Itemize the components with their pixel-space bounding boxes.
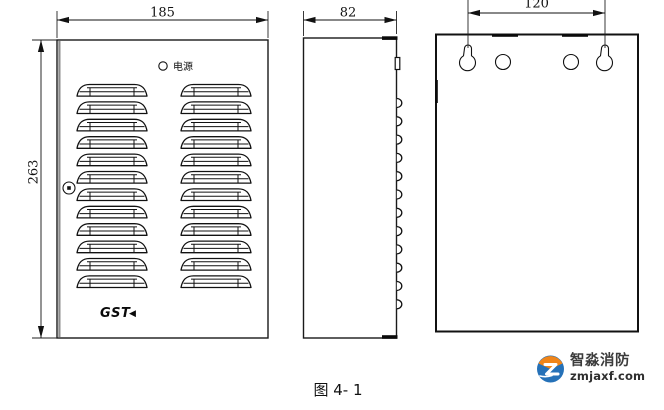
dimension-front-width: 185 [57, 6, 268, 39]
louver-vent [77, 224, 147, 236]
gst-logo-text: GST [100, 306, 131, 321]
zm-logo-icon [536, 352, 566, 384]
watermark-domain: zmjaxf.com [570, 370, 645, 382]
side-top-flange [382, 36, 398, 40]
louver-vent [77, 119, 147, 131]
louver-vent [181, 102, 251, 114]
louver-vent [181, 172, 251, 184]
louver-vent [77, 85, 147, 97]
louver-vent [77, 102, 147, 114]
side-body-outline [304, 38, 397, 338]
side-louver-bump [397, 135, 402, 144]
louver-vent [77, 172, 147, 184]
louver-vent [181, 241, 251, 253]
louver-vent [181, 119, 251, 131]
louver-vent [77, 189, 147, 201]
dimension-side-depth: 82 [304, 6, 397, 37]
figure-canvas: 电源 GST ◀ 185 263 [0, 0, 664, 410]
watermark: 智淼消防 zmjaxf.com [536, 352, 645, 384]
side-louver-bump [397, 282, 402, 291]
side-louver-bump [397, 117, 402, 126]
front-width-value: 185 [150, 6, 175, 21]
louver-vent [77, 206, 147, 218]
louver-vent [181, 137, 251, 149]
louver-vent [77, 241, 147, 253]
gst-logo-mark-icon: ◀ [129, 309, 136, 319]
technical-drawing: 电源 GST ◀ 185 263 [0, 0, 664, 410]
side-louver-profile [397, 99, 402, 309]
figure-caption: 图 4- 1 [288, 379, 388, 400]
louver-vent [181, 154, 251, 166]
side-louver-bump [397, 263, 402, 272]
side-edge-latch-tab [395, 58, 400, 70]
side-louver-bump [397, 172, 402, 181]
back-top-slot-right [562, 34, 588, 37]
dimension-front-height: 263 [27, 40, 58, 338]
watermark-brand: 智淼消防 [570, 354, 645, 369]
front-height-value: 263 [27, 160, 42, 185]
side-louver-bump [397, 153, 402, 162]
power-led-label: 电源 [173, 60, 193, 73]
back-view [435, 34, 638, 331]
louver-vent [181, 206, 251, 218]
louver-vent [77, 154, 147, 166]
side-louver-bump [397, 99, 402, 108]
louver-vent [77, 276, 147, 288]
back-panel-outline [436, 35, 638, 332]
back-top-slot-left [492, 34, 518, 37]
side-louver-bump [397, 245, 402, 254]
side-view [304, 36, 402, 339]
louver-vent [181, 189, 251, 201]
back-left-edge-tab [435, 80, 438, 103]
louver-vent [181, 85, 251, 97]
hole-spacing-value: 120 [524, 0, 549, 12]
louver-vent [181, 259, 251, 271]
side-louver-bump [397, 227, 402, 236]
front-view: 电源 GST ◀ [57, 40, 268, 338]
side-louver-bump [397, 190, 402, 199]
side-depth-value: 82 [340, 6, 357, 21]
louver-vent [181, 224, 251, 236]
louver-vent [181, 276, 251, 288]
side-louver-bump [397, 208, 402, 217]
louver-vent [77, 259, 147, 271]
side-louver-bump [397, 300, 402, 309]
louver-vent [77, 137, 147, 149]
side-bottom-flange [382, 335, 398, 339]
